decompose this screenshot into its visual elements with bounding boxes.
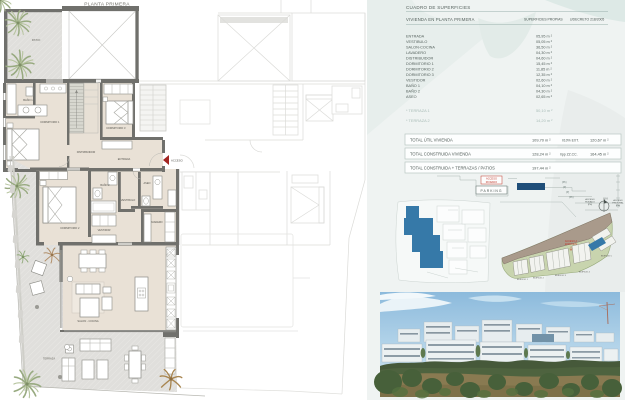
svg-text:02,65 m ²: 02,65 m ² xyxy=(536,95,553,99)
svg-text:05,95 m ²: 05,95 m ² xyxy=(536,35,553,39)
svg-text:ACCESO: ACCESO xyxy=(613,199,623,202)
svg-text:BAÑO 1: BAÑO 1 xyxy=(406,83,420,88)
svg-text:ACCESO: ACCESO xyxy=(585,198,595,201)
svg-text:TOTAL CONSTRUIDA VIVIENDA: TOTAL CONSTRUIDA VIVIENDA xyxy=(410,152,471,157)
svg-text:11,85 m ²: 11,85 m ² xyxy=(536,68,552,72)
svg-text:128,24 m ²: 128,24 m ² xyxy=(532,152,551,157)
svg-text:04,60 m ²: 04,60 m ² xyxy=(536,57,553,61)
svg-text:VESTIDOR: VESTIDOR xyxy=(406,79,426,83)
svg-text:ASEO: ASEO xyxy=(144,182,151,185)
svg-text:EDIFICIO 5: EDIFICIO 5 xyxy=(601,256,613,258)
svg-text:04,30 m ²: 04,30 m ² xyxy=(536,51,553,55)
svg-text:I/10% EXT.: I/10% EXT. xyxy=(562,139,579,143)
svg-text:TOTAL ÚTIL VIVIENDA: TOTAL ÚTIL VIVIENDA xyxy=(410,138,453,143)
svg-text:14,20 m ²: 14,20 m ² xyxy=(536,118,553,123)
svg-text:SALON-COCINA: SALON-COCINA xyxy=(406,46,435,50)
svg-text:TERRAZA: TERRAZA xyxy=(43,357,55,361)
svg-text:DORMITORIO 2: DORMITORIO 2 xyxy=(61,226,81,230)
svg-text:BAÑO 2: BAÑO 2 xyxy=(406,89,420,94)
svg-text:164,45 m ²: 164,45 m ² xyxy=(590,152,609,157)
svg-text:DORMITORIO 3: DORMITORIO 3 xyxy=(107,126,127,130)
svg-text:PARKING: PARKING xyxy=(480,189,502,193)
svg-text:02,60 m ²: 02,60 m ² xyxy=(536,79,553,83)
svg-text:EDIFICIO 2: EDIFICIO 2 xyxy=(533,278,545,280)
svg-text:I/pp ZZ.CC.: I/pp ZZ.CC. xyxy=(560,153,578,157)
svg-text:(Pb): (Pb) xyxy=(588,204,592,206)
svg-text:120,67 m ²: 120,67 m ² xyxy=(590,138,609,143)
svg-text:RODADO: RODADO xyxy=(486,180,497,184)
svg-text:* TERRAZA 1: * TERRAZA 1 xyxy=(406,108,430,113)
svg-text:VESTIDOR: VESTIDOR xyxy=(98,229,111,232)
svg-text:N: N xyxy=(606,197,608,201)
svg-text:DORMITORIO 3: DORMITORIO 3 xyxy=(406,73,434,77)
svg-text:DORMITORIO 1: DORMITORIO 1 xyxy=(406,62,434,66)
svg-text:CUADRO DE SUPERFICIES: CUADRO DE SUPERFICIES xyxy=(406,5,471,10)
svg-text:(P): (P) xyxy=(563,186,566,189)
svg-text:50,10 m ²: 50,10 m ² xyxy=(536,108,553,113)
svg-text:* TERRAZA 2: * TERRAZA 2 xyxy=(406,118,430,123)
svg-text:36,50 m ²: 36,50 m ² xyxy=(536,46,553,50)
svg-text:EDIFICIO 1: EDIFICIO 1 xyxy=(517,279,529,281)
svg-text:PEATONAL: PEATONAL xyxy=(612,202,624,205)
svg-text:VESTIBULO: VESTIBULO xyxy=(406,40,427,44)
svg-text:EDIFICIOS: EDIFICIOS xyxy=(565,243,577,246)
svg-text:EDIFICIO 3: EDIFICIO 3 xyxy=(555,275,567,277)
svg-text:LAVADERO: LAVADERO xyxy=(406,51,426,55)
svg-text:LAVADERO: LAVADERO xyxy=(149,221,162,224)
svg-text:(Pb): (Pb) xyxy=(616,205,620,207)
svg-text:05,05 m ²: 05,05 m ² xyxy=(536,40,553,44)
svg-text:15,45 m ²: 15,45 m ² xyxy=(536,62,553,66)
svg-text:04,10 m ²: 04,10 m ² xyxy=(536,84,553,88)
svg-text:ENTRADA: ENTRADA xyxy=(118,157,131,161)
svg-text:DISTRIBUIDOR: DISTRIBUIDOR xyxy=(406,57,433,61)
svg-text:TOTAL CONSTRUIDA + TERRAZAS /: TOTAL CONSTRUIDA + TERRAZAS / PATIOS xyxy=(410,166,495,171)
svg-text:(Pb): (Pb) xyxy=(569,196,574,199)
svg-text:ASEO: ASEO xyxy=(406,95,417,99)
svg-text:(P): (P) xyxy=(566,191,569,194)
svg-text:DISTRIBUIDOR: DISTRIBUIDOR xyxy=(77,150,96,154)
svg-text:VIVIENDA EN PLANTA PRIMERA: VIVIENDA EN PLANTA PRIMERA xyxy=(406,17,475,22)
svg-text:DORMITORIO 2: DORMITORIO 2 xyxy=(406,68,434,72)
svg-text:s/DECRETO 218/2005: s/DECRETO 218/2005 xyxy=(570,18,604,22)
svg-text:ACCESO: ACCESO xyxy=(171,159,184,163)
svg-text:SALON - COCINA: SALON - COCINA xyxy=(77,319,98,323)
svg-text:PATIO: PATIO xyxy=(32,38,41,42)
svg-text:(Pb): (Pb) xyxy=(562,181,567,184)
svg-text:ENTRADA: ENTRADA xyxy=(406,35,425,39)
svg-text:SUPERFICIES PROPIAS: SUPERFICIES PROPIAS xyxy=(524,18,563,22)
svg-text:109,70 m ²: 109,70 m ² xyxy=(532,138,551,143)
svg-text:BAÑO 2: BAÑO 2 xyxy=(100,184,110,187)
svg-text:197,44 m ²: 197,44 m ² xyxy=(532,166,551,171)
svg-text:EDIFICIO 4: EDIFICIO 4 xyxy=(579,272,591,274)
svg-text:RODADO: RODADO xyxy=(585,201,595,204)
svg-text:12,35 m ²: 12,35 m ² xyxy=(536,73,553,77)
svg-text:VESTIBULO: VESTIBULO xyxy=(121,198,136,202)
svg-text:DORMITORIO 1: DORMITORIO 1 xyxy=(41,120,61,124)
svg-text:04,30 m ²: 04,30 m ² xyxy=(536,90,553,94)
svg-text:ACCESO: ACCESO xyxy=(486,177,497,181)
